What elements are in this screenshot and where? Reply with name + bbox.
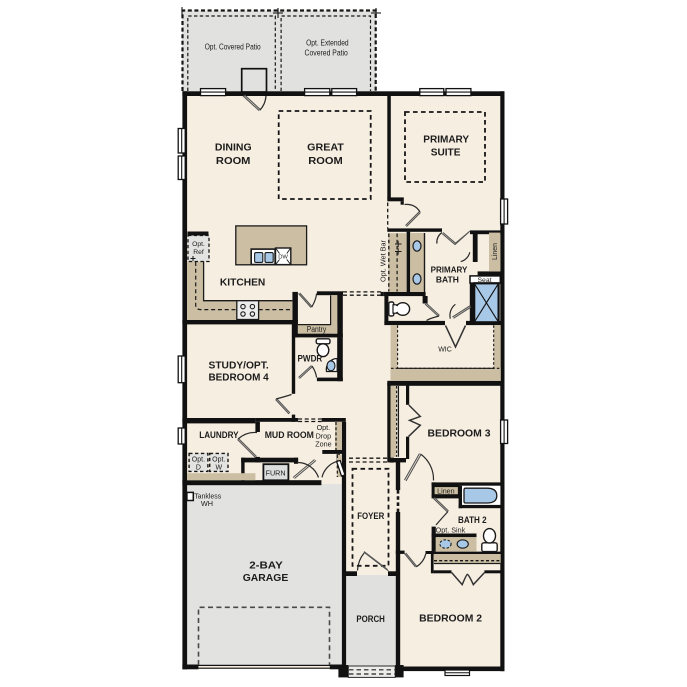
svg-text:Linen: Linen xyxy=(437,486,455,495)
svg-text:PORCH: PORCH xyxy=(356,614,385,624)
svg-text:DINING: DINING xyxy=(215,143,252,154)
svg-text:D: D xyxy=(196,464,201,471)
svg-text:STUDY/OPT.: STUDY/OPT. xyxy=(209,361,269,372)
svg-text:BATH 2: BATH 2 xyxy=(458,515,487,525)
svg-text:MUD ROOM: MUD ROOM xyxy=(265,430,314,440)
svg-text:Ref: Ref xyxy=(193,249,204,256)
svg-text:Opt. Sink: Opt. Sink xyxy=(436,526,466,535)
svg-text:Opt. Extended: Opt. Extended xyxy=(306,39,349,48)
svg-text:LAUNDRY: LAUNDRY xyxy=(199,430,238,440)
svg-text:KITCHEN: KITCHEN xyxy=(220,278,265,289)
svg-text:Linen: Linen xyxy=(492,243,499,260)
svg-text:Opt.: Opt. xyxy=(192,241,205,248)
svg-text:PRIMARY: PRIMARY xyxy=(431,265,468,275)
svg-text:W: W xyxy=(215,464,222,471)
svg-text:2-BAY: 2-BAY xyxy=(249,560,283,571)
svg-text:Zone: Zone xyxy=(315,440,331,449)
svg-text:BEDROOM 2: BEDROOM 2 xyxy=(419,614,482,625)
svg-text:ROOM: ROOM xyxy=(308,156,343,167)
svg-text:DW: DW xyxy=(278,255,288,261)
svg-text:SUITE: SUITE xyxy=(431,148,461,159)
svg-text:PRIMARY: PRIMARY xyxy=(423,135,469,146)
svg-text:WH: WH xyxy=(201,499,213,508)
svg-text:Opt.: Opt. xyxy=(192,457,205,464)
svg-text:PWDR: PWDR xyxy=(298,353,323,363)
svg-text:FURN: FURN xyxy=(266,468,286,477)
svg-text:Opt.: Opt. xyxy=(212,457,225,464)
svg-text:Opt. Wet Bar: Opt. Wet Bar xyxy=(378,239,387,282)
svg-text:GREAT: GREAT xyxy=(307,143,344,154)
svg-text:ROOM: ROOM xyxy=(216,156,251,167)
svg-text:FOYER: FOYER xyxy=(357,511,385,521)
svg-text:Covered Patio: Covered Patio xyxy=(305,49,349,58)
svg-text:BATH: BATH xyxy=(436,275,459,285)
svg-text:BEDROOM 3: BEDROOM 3 xyxy=(428,428,491,439)
svg-text:BEDROOM 4: BEDROOM 4 xyxy=(209,372,269,383)
svg-text:Pantry: Pantry xyxy=(307,325,326,334)
svg-text:WIC: WIC xyxy=(438,347,452,354)
svg-text:Opt. Covered Patio: Opt. Covered Patio xyxy=(205,43,262,52)
svg-text:GARAGE: GARAGE xyxy=(243,573,289,584)
